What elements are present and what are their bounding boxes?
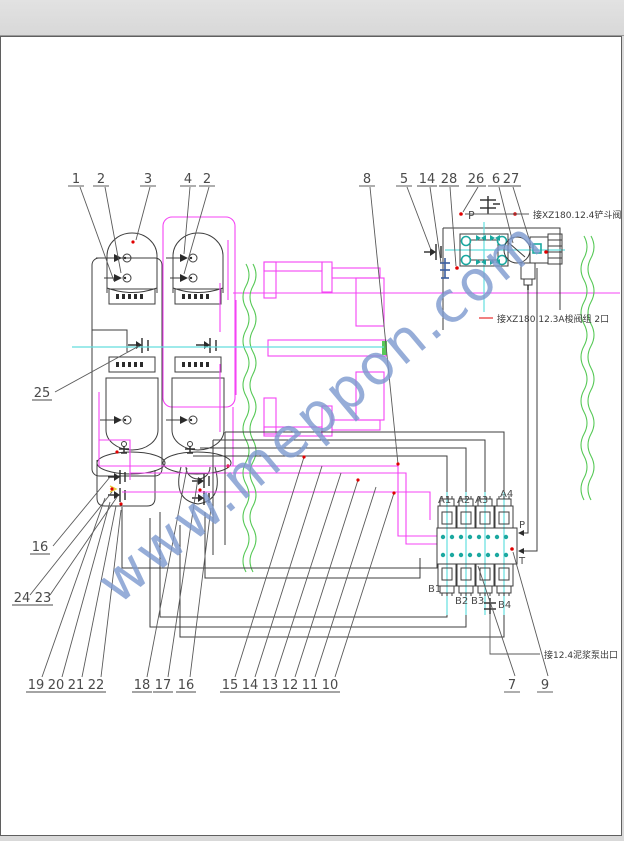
callout-12: 12 bbox=[282, 678, 299, 693]
callout-26: 26 bbox=[468, 172, 485, 187]
callout-13: 13 bbox=[262, 678, 279, 693]
port-label-a2: A2 bbox=[457, 495, 470, 506]
callout-15: 15 bbox=[222, 678, 239, 693]
coupling-icon bbox=[96, 254, 131, 262]
drawing-viewer: P bbox=[0, 0, 624, 841]
port-label-a4: A4 bbox=[500, 489, 513, 500]
nameplate bbox=[175, 357, 221, 372]
port-label-a1: A1 bbox=[438, 495, 451, 506]
callout-17: 17 bbox=[155, 678, 172, 693]
callout-2: 2 bbox=[97, 172, 105, 187]
callout-22: 22 bbox=[88, 678, 105, 693]
callout-7: 7 bbox=[508, 678, 516, 693]
port-label-b4: B4 bbox=[498, 600, 511, 611]
manifold-ports bbox=[441, 535, 508, 557]
pilot-p-label: P bbox=[468, 209, 475, 222]
nameplate bbox=[175, 289, 221, 304]
nameplate-marks bbox=[182, 294, 209, 299]
callout-8: 8 bbox=[363, 172, 371, 187]
port-label-b1: B1 bbox=[428, 584, 441, 595]
callout-4: 4 bbox=[184, 172, 192, 187]
nameplate bbox=[109, 289, 155, 304]
callout-2b: 2 bbox=[203, 172, 211, 187]
annotation-valve-p1: 接XZ180.12.4铲斗阀 P1口 bbox=[533, 209, 624, 221]
port-label-b3: B3 bbox=[471, 596, 484, 607]
breather-icon bbox=[185, 442, 195, 454]
manifold-t-label: T bbox=[518, 556, 526, 567]
callout-20: 20 bbox=[48, 678, 65, 693]
hydraulic-schematic: P bbox=[0, 0, 624, 841]
callout-16: 16 bbox=[178, 678, 195, 693]
solenoid-valves-bottom bbox=[438, 564, 513, 596]
callout-14: 14 bbox=[419, 172, 436, 187]
callout-14b: 14 bbox=[242, 678, 259, 693]
callout-10: 10 bbox=[322, 678, 339, 693]
callout-19: 19 bbox=[28, 678, 45, 693]
callout-18: 18 bbox=[134, 678, 151, 693]
callout-24: 24 bbox=[14, 591, 31, 606]
callout-5: 5 bbox=[400, 172, 408, 187]
annotation-shuttle-2: 接XZ180.12.3A梭阀组 2口 bbox=[497, 313, 609, 325]
annotation-pump-out: 接12.4泥浆泵出口 bbox=[544, 649, 618, 661]
coupling-icon bbox=[166, 416, 197, 424]
coupling-icon bbox=[104, 274, 131, 282]
valve-fitting-icon bbox=[108, 488, 125, 502]
callout-28: 28 bbox=[441, 172, 458, 187]
solenoid-valve-manifold: P T A1 A2 A3 A4 B1 B2 B3 B4 bbox=[428, 489, 526, 615]
nameplate-marks bbox=[116, 294, 143, 299]
hydraulic-cylinder-unit-1 bbox=[92, 233, 165, 506]
callout-25: 25 bbox=[34, 386, 51, 401]
nameplate-marks bbox=[182, 362, 209, 367]
breather-icon bbox=[119, 442, 129, 454]
callout-9: 9 bbox=[541, 678, 549, 693]
nameplate-marks bbox=[116, 362, 143, 367]
callout-3: 3 bbox=[144, 172, 152, 187]
callout-21: 21 bbox=[68, 678, 85, 693]
callout-11: 11 bbox=[302, 678, 319, 693]
port-label-a3: A3 bbox=[475, 495, 488, 506]
coupling-icon bbox=[100, 416, 131, 424]
centerline-fitting-icon bbox=[196, 338, 216, 353]
nameplate bbox=[109, 357, 155, 372]
callout-16-left: 16 bbox=[32, 540, 49, 555]
callout-23: 23 bbox=[35, 591, 52, 606]
manifold-p-label: P bbox=[519, 520, 525, 531]
coupling-icon bbox=[170, 274, 197, 282]
coupling-icon bbox=[166, 254, 197, 262]
callout-27: 27 bbox=[503, 172, 520, 187]
callout-1: 1 bbox=[72, 172, 80, 187]
test-point-icon bbox=[480, 196, 500, 214]
callout-6: 6 bbox=[492, 172, 500, 187]
port-label-b2: B2 bbox=[455, 596, 468, 607]
